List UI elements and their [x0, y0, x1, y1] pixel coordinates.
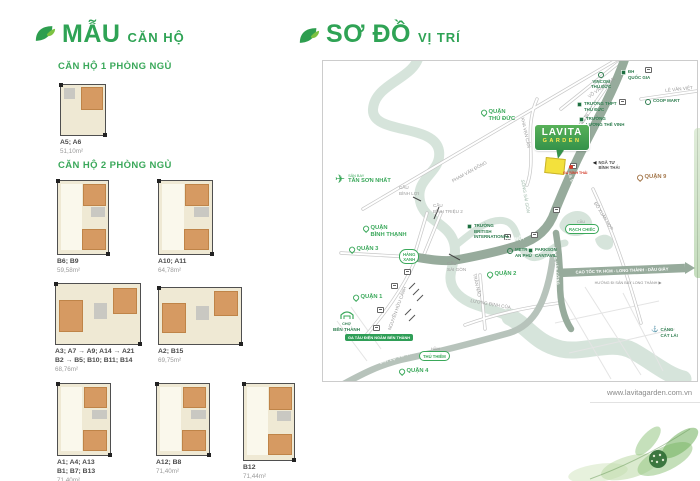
location-pin-icon: [348, 246, 356, 254]
right-title-main: SƠ ĐỒ: [326, 22, 411, 47]
location-pin-icon: [352, 294, 360, 302]
metro-station-icon: [373, 325, 380, 331]
leaf-decoration: [480, 409, 700, 481]
bridge-sai-gon: CẦU SÀI GÒN: [447, 261, 466, 272]
school-icon: [579, 117, 584, 122]
floorplan-a1-group: [57, 383, 111, 456]
university-icon: [621, 70, 626, 75]
floorplan-label: A12; B8 71,40m²: [156, 459, 181, 476]
leaf-icon: [298, 26, 320, 45]
district-q4: QUẬN 4: [399, 368, 428, 375]
poi-vincom: VINCOM THỦ ĐỨC: [591, 71, 611, 90]
bridge-rach-chiec: RẠCH CHIẾC: [565, 224, 599, 234]
floorplan-label: B6; B9 59,58m²: [57, 258, 80, 275]
left-title-sub: CĂN HỘ: [127, 30, 184, 45]
divider: [590, 402, 700, 403]
metro-station-icon: [377, 307, 384, 313]
floorplan-label: A10; A11 64,78m²: [158, 258, 186, 275]
metro-station-icon: [404, 269, 411, 275]
project-brand: GARDEN: [535, 139, 589, 145]
tunnel-thu-thiem: THỦ THIÊM: [419, 351, 450, 361]
mall-icon: [598, 72, 604, 78]
section-2br-heading: CĂN HỘ 2 PHÒNG NGỦ: [58, 160, 172, 171]
cao-toc-direction-note: HƯỚNG ĐI SÂN BAY LONG THÀNH ▶: [575, 280, 681, 285]
district-q1: QUẬN 1: [353, 294, 382, 301]
metro-station-icon: [391, 283, 398, 289]
market-icon: [340, 311, 354, 320]
floorplan-label: B12 71,44m²: [243, 464, 266, 481]
station-pin-icon: [569, 165, 573, 169]
floorplan-a2-b15: [158, 287, 242, 345]
floorplan-a3-group: [55, 283, 141, 345]
school-icon: [467, 224, 472, 229]
floorplan-label: A2; B15 69,75m²: [158, 348, 183, 365]
district-q9: QUẬN 9: [637, 174, 666, 181]
floorplan-b6-b9: [57, 180, 109, 255]
district-q2: QUẬN 2: [487, 271, 516, 278]
poi-british-international: TRƯỜNG BRITISH INTERNATIONAL: [467, 223, 510, 240]
floorplan-a10-a11: [158, 180, 213, 255]
binh-thai-station-label: GA BÌNH THÁI: [563, 171, 587, 175]
floorplan-label: A3; A7 → A9; A14 → A21 B2 → B5; B10; B11…: [55, 348, 134, 374]
project-name: LAVITA: [535, 127, 589, 139]
floorplan-label: A5; A6 51,10m²: [60, 139, 83, 156]
airplane-icon: ✈: [335, 173, 345, 185]
metro-station-icon: [553, 207, 560, 213]
location-pin-icon: [362, 225, 370, 233]
brochure-page: MẪU CĂN HỘ CĂN HỘ 1 PHÒNG NGỦ A5; A6 51,…: [0, 0, 700, 481]
metro-station-icon: [531, 232, 538, 238]
poi-thpt-thu-duc: TRƯỜNG THPT THỦ ĐỨC: [577, 101, 617, 112]
leaf-decoration: [694, 128, 700, 278]
bridge-binh-trieu-2: CẦU BÌNH TRIỆU 2: [433, 203, 463, 214]
metro-terminal-badge: GA TÀU ĐIỆN NGẦM BẾN THÀNH: [345, 334, 413, 341]
anchor-icon: ⚓: [651, 327, 658, 333]
floorplan-label: A1; A4; A13 B1; B7; B13 71,40m²: [57, 459, 95, 481]
right-title: SƠ ĐỒ VỊ TRÍ: [326, 22, 461, 47]
right-title-sub: VỊ TRÍ: [418, 30, 461, 45]
leaf-icon: [34, 24, 56, 43]
shopping-cart-icon: [507, 248, 513, 254]
binh-thai-junction-label: ◀ NGÃ TƯ BÌNH THÁI: [593, 160, 620, 171]
metro-station-icon: [619, 99, 626, 105]
poi-parkson-cantavil: PARKSON CANTAVIL: [528, 247, 557, 258]
location-map: ✈ SÂN BAY TÂN SƠN NHẤT QUẬN THỦ ĐỨC QUẬN…: [322, 60, 698, 382]
website-link[interactable]: www.lavitagarden.com.vn: [607, 388, 692, 397]
bridge-binh-loi: CẦU BÌNH LỢI: [399, 185, 419, 196]
district-thu-duc: QUẬN THỦ ĐỨC: [481, 109, 515, 123]
floorplan-b12: [243, 383, 295, 461]
location-pin-icon: [486, 271, 494, 279]
lavita-garden-callout: LAVITA GARDEN: [535, 125, 589, 150]
poi-dh-quoc-gia: ĐH QUỐC GIA: [621, 69, 650, 80]
left-title: MẪU CĂN HỘ: [62, 22, 185, 47]
location-pin-icon: [480, 109, 488, 117]
shopping-cart-icon: [645, 99, 651, 105]
section-1br-heading: CĂN HỘ 1 PHÒNG NGỦ: [58, 61, 172, 72]
floorplan-a5-a6: [60, 84, 106, 136]
poi-coop-mart: COOP MART: [645, 98, 680, 105]
left-title-main: MẪU: [62, 22, 120, 47]
poi-cang-cat-lai: ⚓ CẢNG CÁT LÁI: [651, 327, 678, 338]
airport-label: ✈ SÂN BAY TÂN SƠN NHẤT: [335, 173, 391, 185]
left-arrow-icon: ◀: [593, 160, 596, 171]
hang-xanh-node: HÀNG XANH: [399, 249, 419, 264]
mall-icon: [528, 248, 533, 253]
location-pin-icon: [636, 174, 644, 182]
location-pin-icon: [398, 368, 406, 376]
floorplan-a12-b8: [156, 383, 210, 456]
district-binh-thanh: QUẬN BÌNH THẠNH: [363, 225, 407, 239]
school-icon: [577, 102, 582, 107]
poi-cho-ben-thanh: CHỢ BẾN THÀNH: [333, 311, 360, 332]
district-q3: QUẬN 3: [349, 246, 378, 253]
